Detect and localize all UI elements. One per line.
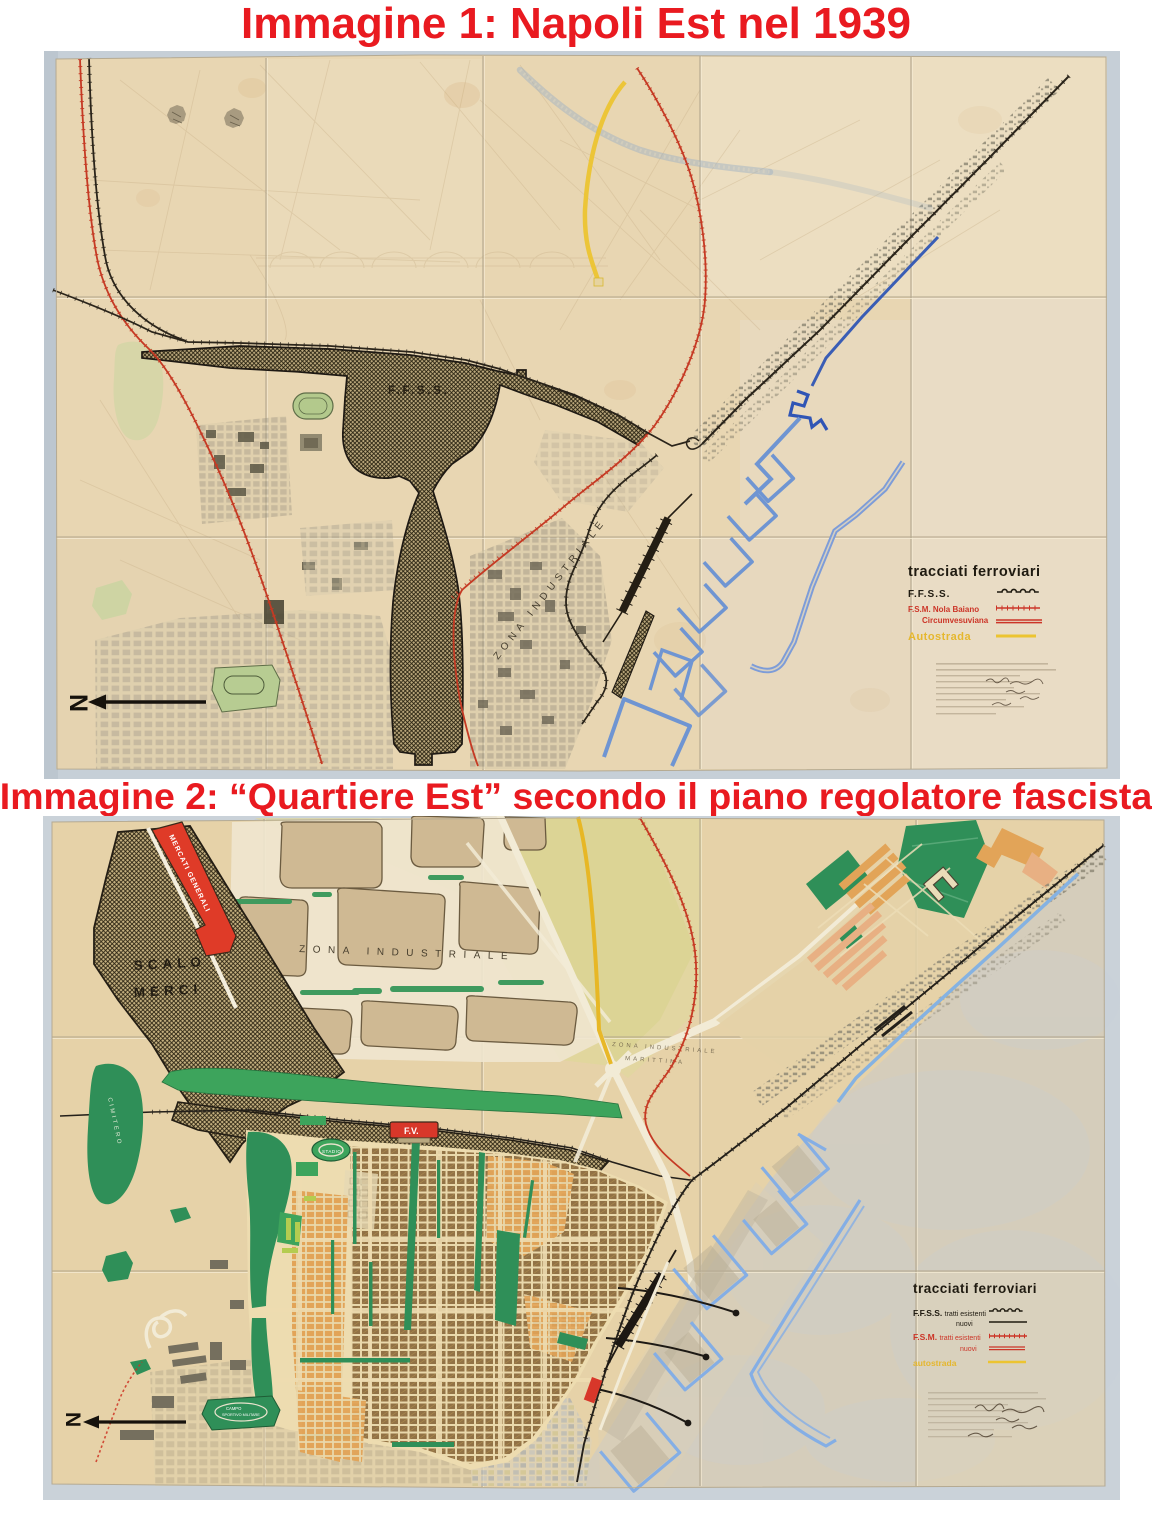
svg-text:tracciati ferroviari: tracciati ferroviari xyxy=(908,564,1041,580)
svg-text:F.V.: F.V. xyxy=(404,1126,419,1136)
svg-text:F.F.S.S.: F.F.S.S. xyxy=(908,589,950,600)
svg-text:autostrada: autostrada xyxy=(913,1358,957,1368)
svg-text:Circumvesuviana: Circumvesuviana xyxy=(922,616,989,625)
svg-text:nuovi: nuovi xyxy=(956,1321,973,1328)
svg-text:nuovi: nuovi xyxy=(960,1346,977,1353)
svg-text:N: N xyxy=(64,694,92,712)
svg-text:Autostrada: Autostrada xyxy=(908,631,971,643)
svg-text:F.F.S.S.: F.F.S.S. xyxy=(388,383,449,397)
svg-text:F.S.M. Nola Baiano: F.S.M. Nola Baiano xyxy=(908,605,979,614)
svg-text:tracciati ferroviari: tracciati ferroviari xyxy=(913,1281,1037,1296)
svg-text:CAMPO: CAMPO xyxy=(226,1406,242,1411)
svg-text:SPORTIVO MILITARE: SPORTIVO MILITARE xyxy=(222,1413,260,1417)
svg-text:N: N xyxy=(61,1412,84,1427)
svg-text:STADIO: STADIO xyxy=(322,1149,341,1154)
